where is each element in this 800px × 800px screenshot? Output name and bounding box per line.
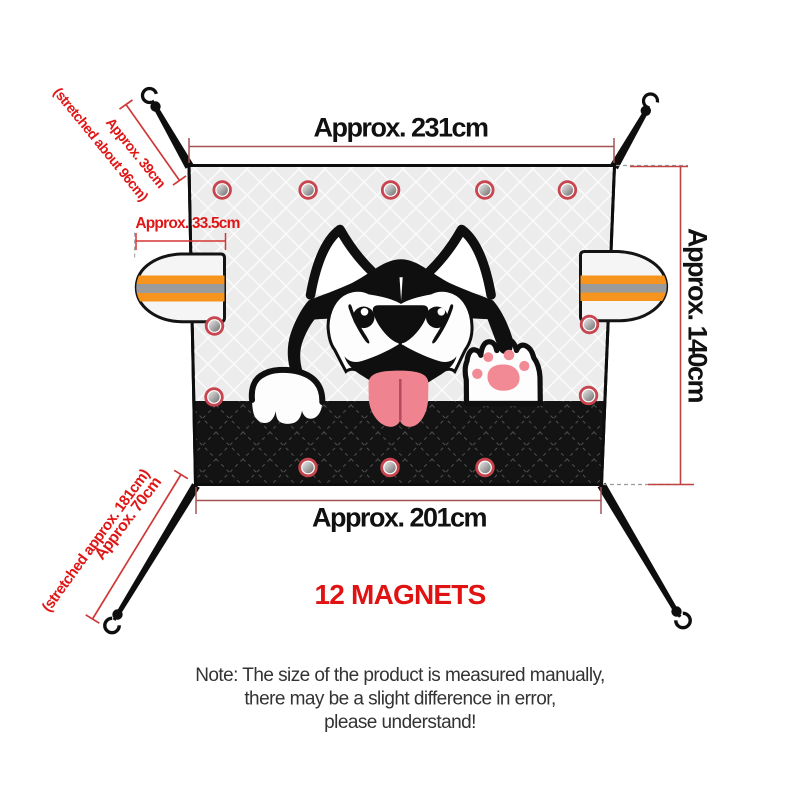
svg-text:Approx. 33.5cm: Approx. 33.5cm bbox=[135, 215, 239, 232]
svg-text:Approx. 231cm: Approx. 231cm bbox=[313, 113, 488, 143]
svg-text:Approx. 140cm: Approx. 140cm bbox=[683, 228, 713, 403]
svg-text:there may be a slight differen: there may be a slight difference in erro… bbox=[244, 689, 555, 710]
svg-text:Note: The size of the product: Note: The size of the product is measure… bbox=[195, 665, 605, 686]
svg-text:12 MAGNETS: 12 MAGNETS bbox=[315, 579, 486, 610]
svg-text:Approx. 201cm: Approx. 201cm bbox=[312, 503, 487, 533]
svg-text:please understand!: please understand! bbox=[324, 712, 476, 733]
